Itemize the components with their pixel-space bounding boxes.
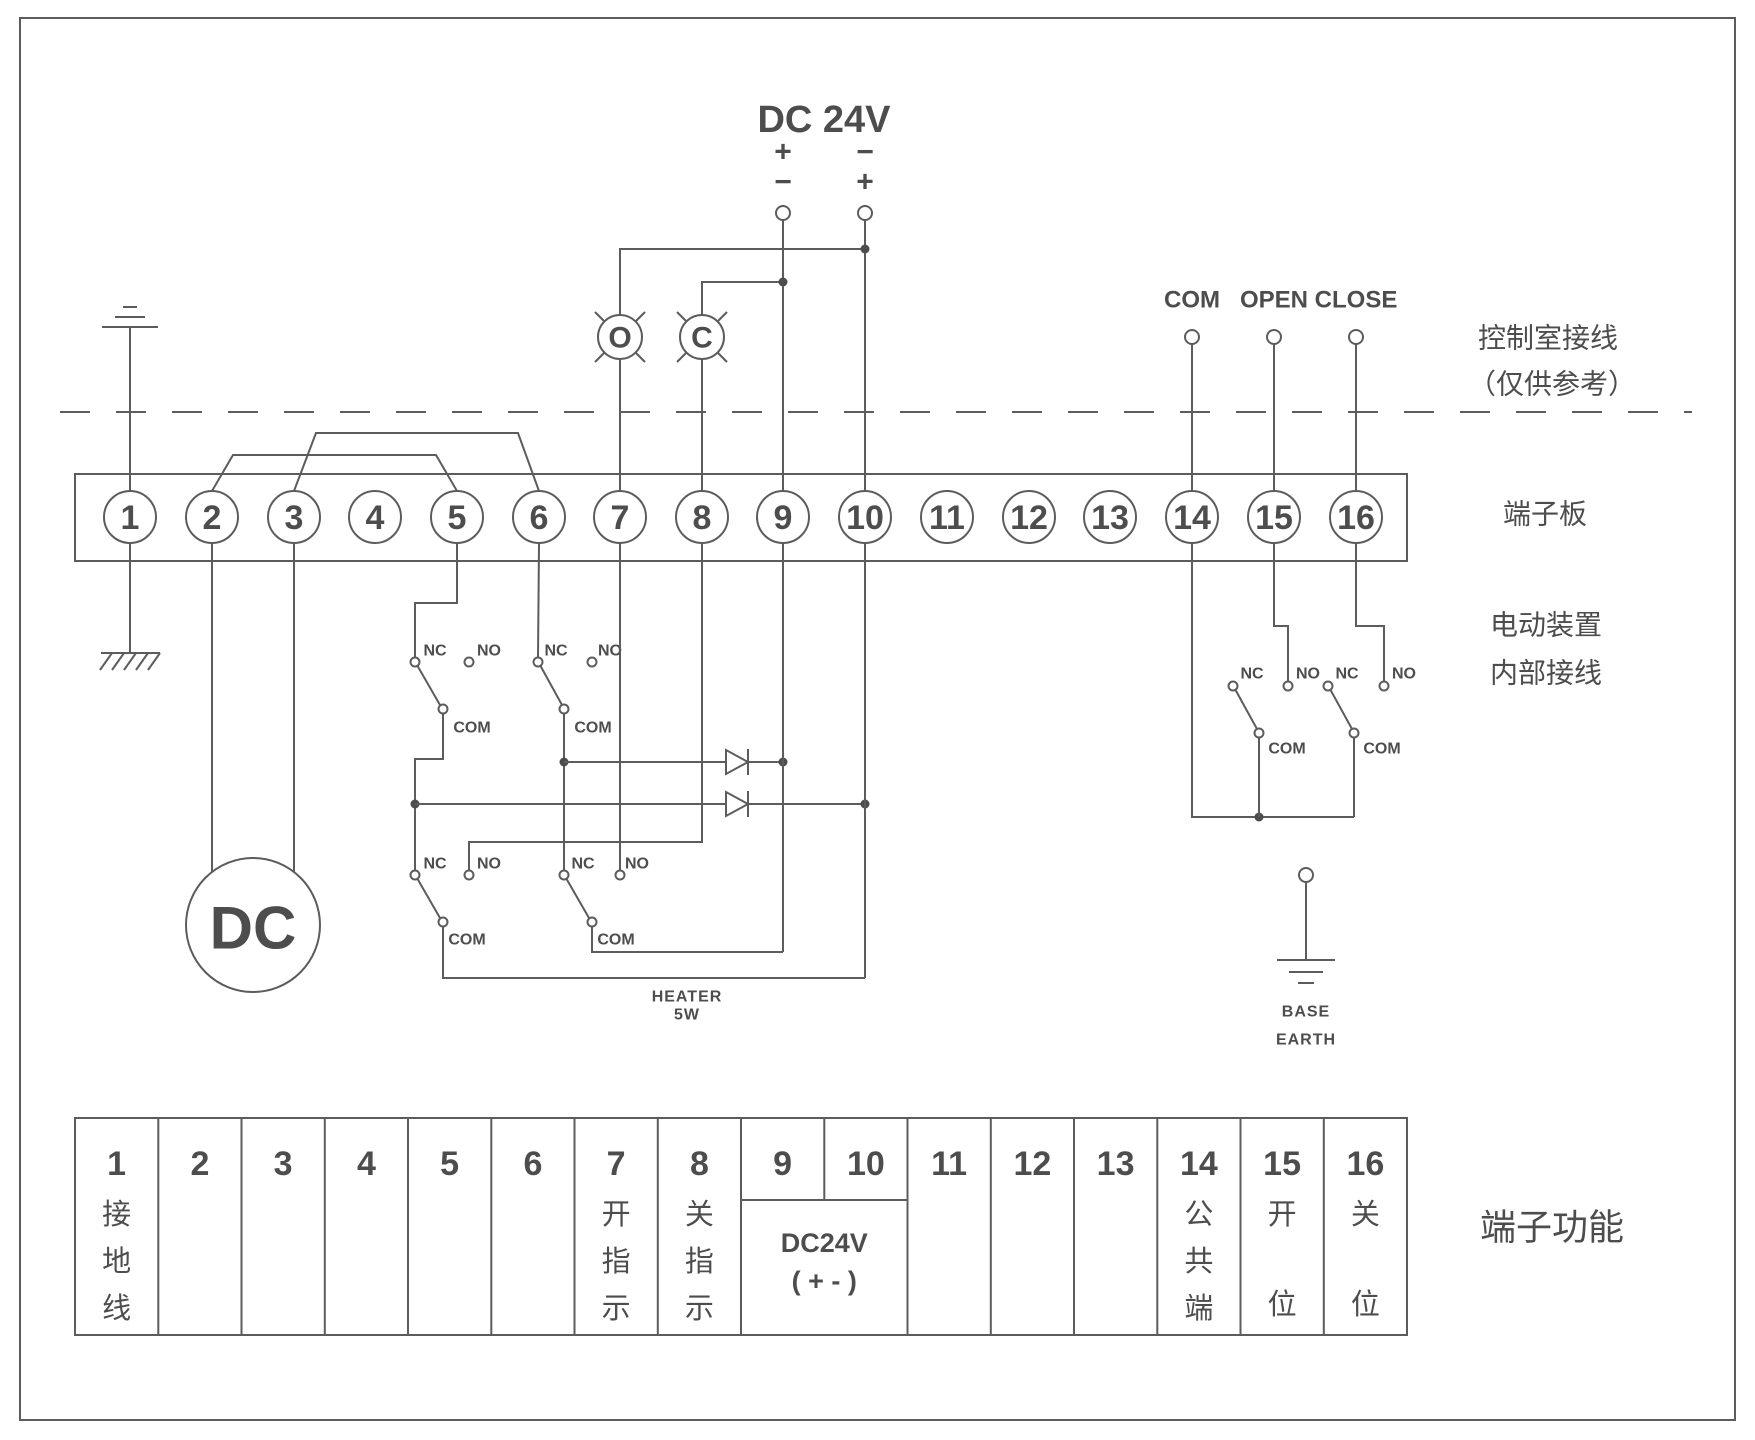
table-func-char: 指 [685, 1245, 714, 1278]
terminal-number: 15 [1255, 499, 1293, 537]
remote-com-terminal [1185, 330, 1199, 344]
polarity-right-top: − [856, 136, 874, 169]
table-func-char: 关 [685, 1198, 714, 1231]
remote-close-terminal [1349, 330, 1363, 344]
table-number: 13 [1097, 1145, 1135, 1183]
device-note-line1: 电动装置 [1490, 610, 1602, 641]
polarity-left-top: + [774, 136, 792, 169]
table-number: 12 [1013, 1145, 1051, 1183]
contact-no [616, 871, 625, 880]
lamp-ray-icon [636, 312, 645, 321]
base-earth: BASE EARTH [1276, 868, 1336, 1049]
terminal-number: 2 [203, 499, 222, 537]
switch-blade [540, 665, 562, 705]
wire-close-lamp-top [702, 282, 783, 315]
switch-blade [417, 878, 440, 918]
table-func-char: 指 [602, 1245, 631, 1278]
terminal-number: 16 [1337, 499, 1375, 537]
contact-com [1350, 729, 1359, 738]
table-func-char: 开 [602, 1199, 631, 1231]
table-func-char: 端 [1184, 1292, 1213, 1325]
table-func-char: 开 [1268, 1199, 1297, 1231]
supply-terminal-minus [858, 206, 872, 220]
wire-t8-to-no [469, 543, 702, 870]
switch-blade [566, 878, 589, 918]
table-func-char: 关 [1351, 1198, 1380, 1231]
table-number: 14 [1180, 1145, 1218, 1183]
table-number: 6 [523, 1145, 542, 1183]
section-annotations: 控制室接线 （仅供参考） 端子板 电动装置 内部接线 端子功能 [1468, 323, 1636, 1248]
table-number: 1 [107, 1145, 126, 1183]
com-label: COM [453, 720, 490, 737]
schematic-canvas: DC 24V + − − + O C COM OPEN CLOSE [0, 0, 1755, 1440]
terminal-function-note: 端子功能 [1480, 1207, 1624, 1248]
lamp-ray-icon [595, 312, 604, 321]
terminal-number: 7 [611, 499, 630, 537]
dc-supply: DC 24V + − − + [757, 99, 891, 220]
table-number: 15 [1263, 1145, 1301, 1183]
lamp-ray-icon [718, 312, 727, 321]
wire-t15-to-no [1274, 543, 1288, 682]
dc-motor-label: DC [210, 895, 297, 962]
nc-label: NC [423, 643, 447, 660]
drawing-frame [20, 18, 1735, 1420]
contact-no [1284, 682, 1293, 691]
switch-blade [417, 665, 440, 705]
terminal-function-table: 1 2 3 4 5 6 7 8 9 10 11 12 13 14 15 16 接… [75, 1118, 1407, 1335]
remote-open-label: OPEN [1240, 287, 1308, 314]
heater-label-line2: 5W [674, 1007, 700, 1024]
com-label: COM [597, 932, 634, 949]
remote-signals: COM OPEN CLOSE [1164, 287, 1397, 492]
table-func-char: 公 [1184, 1199, 1213, 1231]
contact-no [465, 658, 474, 667]
contact-com [1255, 729, 1264, 738]
contact-no [1380, 682, 1389, 691]
diode-icon [726, 792, 748, 816]
wire-com1-down [415, 714, 443, 870]
terminal-number: 11 [929, 499, 965, 537]
lamp-ray-icon [677, 353, 686, 362]
base-earth-terminal [1299, 868, 1313, 882]
terminal-number: 1 [121, 499, 140, 537]
internal-wiring: DC NC NO COM NC NO COM [100, 543, 1416, 1049]
no-label: NO [1296, 666, 1320, 683]
table-func-char: 示 [602, 1293, 631, 1325]
control-room-note-line2: （仅供参考） [1468, 369, 1636, 400]
terminal-number: 6 [530, 499, 549, 537]
close-lamp-letter: C [691, 322, 713, 355]
contact-no [465, 871, 474, 880]
table-number: 5 [440, 1145, 459, 1183]
junction-dot [779, 278, 788, 287]
table-dc24v-polarity: ( + - ) [792, 1266, 857, 1296]
nc-label: NC [1335, 666, 1359, 683]
lamp-ray-icon [677, 312, 686, 321]
terminal-number: 5 [448, 499, 467, 537]
table-func-char: 共 [1184, 1245, 1213, 1278]
table-number: 11 [931, 1145, 967, 1183]
lamp-ray-icon [636, 353, 645, 362]
wiring-diagram-page: DC 24V + − − + O C COM OPEN CLOSE [0, 0, 1755, 1440]
terminal-board: 1 2 3 4 5 6 7 8 9 10 11 12 13 14 15 16 [75, 433, 1407, 561]
remote-open-terminal [1267, 330, 1281, 344]
terminal-number: 3 [285, 499, 304, 537]
remote-com-label: COM [1164, 287, 1220, 314]
earth-hatch-icon [100, 653, 160, 670]
terminal-number: 9 [774, 499, 793, 537]
table-dc24v-label: DC24V [781, 1228, 868, 1258]
no-label: NO [1392, 666, 1416, 683]
wire-t6-to-switch [538, 543, 539, 658]
nc-label: NC [571, 856, 595, 873]
table-number: 3 [274, 1145, 293, 1183]
table-number: 4 [357, 1145, 376, 1183]
switch-blade [1235, 689, 1257, 729]
polarity-right-bottom: + [856, 166, 874, 199]
com-label: COM [448, 932, 485, 949]
terminal-number: 13 [1091, 499, 1129, 537]
contact-com [439, 705, 448, 714]
base-earth-label-line2: EARTH [1276, 1032, 1336, 1049]
contact-com [588, 918, 597, 927]
terminal-number: 4 [366, 499, 385, 537]
table-func-char: 接 [102, 1198, 131, 1231]
nc-label: NC [423, 856, 447, 873]
contact-com [439, 918, 448, 927]
device-note-line2: 内部接线 [1490, 658, 1602, 689]
table-number: 2 [190, 1145, 209, 1183]
table-number: 7 [607, 1145, 626, 1183]
terminal-number: 8 [693, 499, 712, 537]
open-lamp-letter: O [608, 322, 631, 355]
terminal-number: 14 [1173, 499, 1211, 537]
control-room-ground [102, 307, 158, 491]
table-func-char: 线 [102, 1292, 131, 1325]
table-func-char: 位 [1268, 1288, 1297, 1321]
no-label: NO [477, 856, 501, 873]
nc-label: NC [1240, 666, 1264, 683]
nc-label: NC [544, 643, 568, 660]
jumper-3-to-6 [294, 433, 539, 491]
polarity-left-bottom: − [774, 166, 792, 199]
contact-com [560, 705, 569, 714]
contact-no [588, 658, 597, 667]
com-label: COM [574, 720, 611, 737]
junction-dot [861, 245, 870, 254]
table-number: 10 [847, 1145, 885, 1183]
supply-terminal-plus [776, 206, 790, 220]
no-label: NO [625, 856, 649, 873]
table-number: 9 [773, 1145, 792, 1183]
base-earth-label-line1: BASE [1282, 1004, 1330, 1021]
table-number: 16 [1346, 1145, 1384, 1183]
table-number: 8 [690, 1145, 709, 1183]
com-label: COM [1363, 741, 1400, 758]
control-room-note-line1: 控制室接线 [1478, 323, 1618, 354]
table-func-char: 地 [102, 1245, 131, 1278]
switch-blade [1330, 689, 1352, 729]
control-room-wiring [620, 220, 870, 491]
wire-t16-to-no [1356, 543, 1384, 682]
terminal-board-note: 端子板 [1503, 499, 1587, 530]
lamp-ray-icon [595, 353, 604, 362]
lamp-ray-icon [718, 353, 727, 362]
no-label: NO [598, 643, 622, 660]
diode-icon [726, 750, 748, 774]
terminal-number: 10 [846, 499, 884, 537]
heater-label-line1: HEATER [652, 989, 723, 1006]
no-label: NO [477, 643, 501, 660]
remote-close-label: CLOSE [1315, 287, 1398, 314]
indicator-lamps: O C [595, 312, 727, 362]
table-func-char: 示 [685, 1293, 714, 1325]
table-func-char: 位 [1351, 1288, 1380, 1321]
terminal-number: 12 [1010, 499, 1048, 537]
com-label: COM [1268, 741, 1305, 758]
